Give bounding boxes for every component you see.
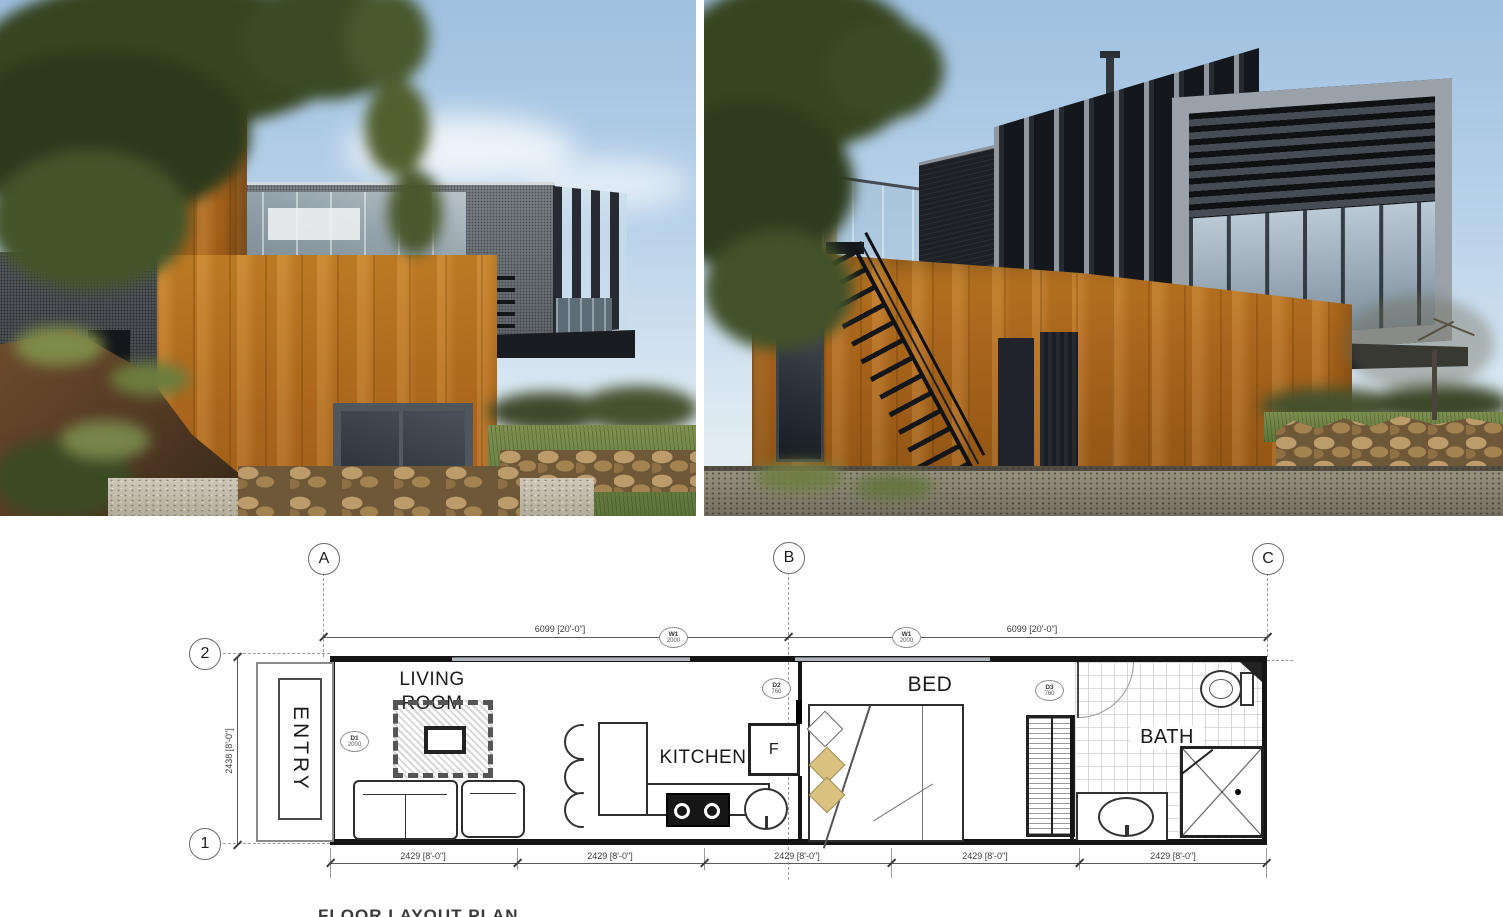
burner — [674, 803, 690, 819]
grid-bubble-c-label: C — [1262, 550, 1274, 568]
sink-faucet — [1125, 825, 1129, 835]
grid-bubble-c: C — [1252, 543, 1284, 575]
photo-left-exterior — [0, 0, 696, 516]
door-tag-d2: D2 760 — [762, 678, 791, 699]
kitchen-island-vertical — [598, 722, 648, 816]
grid-bubble-a: A — [308, 543, 340, 575]
grid-bubble-2: 2 — [189, 638, 221, 670]
faucet — [765, 816, 768, 828]
dim-extension — [1079, 848, 1080, 870]
dim-text-left: 2438 [8'-0"] — [224, 728, 234, 773]
fridge-label: F — [769, 741, 779, 759]
foliage-mass — [824, 20, 944, 120]
shower-drain — [1235, 789, 1241, 795]
entry-inner: ENTRY — [278, 678, 322, 820]
door-dark — [998, 338, 1034, 470]
grid-line-2 — [218, 653, 330, 654]
tuft — [60, 420, 150, 460]
grid-line-a — [323, 573, 324, 657]
bar-stool — [564, 724, 600, 760]
photo-right-exterior — [704, 0, 1503, 516]
dim-extension — [517, 848, 518, 870]
tuft — [854, 474, 934, 500]
door-tag-d1: D1 2000 — [340, 731, 369, 752]
burner — [704, 803, 720, 819]
coffee-table — [424, 726, 466, 754]
dim-line-bottom — [330, 863, 1267, 864]
sofa — [353, 780, 458, 840]
dim-text-top-right: 6099 [20'-0"] — [1007, 624, 1057, 634]
kitchen-label: KITCHEN — [655, 747, 751, 769]
plan-title: FLOOR LAYOUT PLAN — [318, 906, 519, 917]
bar-stool — [564, 792, 600, 828]
tuft — [14, 326, 104, 366]
bed-label: BED — [895, 673, 965, 697]
foliage-sprig — [345, 0, 429, 85]
grid-bubble-1: 1 — [189, 828, 221, 860]
grid-line-c — [1267, 573, 1268, 657]
foliage-mass — [0, 150, 190, 290]
armchair-seat-line — [470, 793, 516, 794]
foliage-sprig — [365, 80, 429, 175]
door-leaf-d2 — [796, 700, 802, 724]
roof-louvres — [1189, 96, 1435, 218]
wardrobe-divider — [1051, 718, 1053, 834]
grid-bubble-b-label: B — [784, 549, 795, 567]
foliage-sprig — [388, 170, 442, 255]
kitchen-sink — [744, 788, 788, 830]
armchair — [461, 780, 525, 838]
grid-line-c-stub — [1267, 660, 1293, 661]
screenshot-root: A B C 2 1 6099 [20'-0"] 6099 [20'-0"] W1… — [0, 0, 1503, 917]
vanity-sink — [1098, 797, 1154, 837]
duvet-corner-line — [873, 784, 933, 822]
dim-tick — [233, 840, 242, 849]
fridge: F — [748, 723, 800, 776]
grass-tufts — [744, 452, 1004, 516]
tuft — [110, 362, 190, 396]
dim-text-bottom-4: 2429 [8'-0"] — [962, 851, 1007, 861]
bar-stool — [564, 759, 600, 795]
door-tag-size: 2000 — [348, 742, 361, 748]
bare-tree-crown — [1344, 296, 1494, 392]
sofa-seat-split — [405, 794, 406, 838]
door-tag-size: 760 — [771, 689, 781, 695]
partition-wall-b-lower — [798, 776, 802, 839]
tree-canopy — [704, 0, 954, 380]
dim-text-bottom-2: 2429 [8'-0"] — [587, 851, 632, 861]
window-tag-w1-left: W1 2000 — [659, 627, 688, 648]
dim-text-bottom-5: 2429 [8'-0"] — [1150, 851, 1195, 861]
dim-line-left — [237, 657, 238, 845]
door-tag-d3: D3 760 — [1035, 680, 1064, 701]
shower-corner-cut — [1181, 749, 1214, 775]
dim-line-top — [323, 637, 1267, 638]
grid-bubble-a-label: A — [319, 550, 330, 568]
dim-text-top-left: 6099 [20'-0"] — [535, 624, 585, 634]
stone-wall-foreground — [238, 466, 520, 516]
toilet-tank — [1240, 672, 1254, 706]
grid-line-1 — [218, 843, 330, 844]
grid-bubble-1-label: 1 — [201, 835, 210, 853]
bed-bath-wall — [1070, 716, 1074, 839]
door-slatted — [1040, 332, 1078, 472]
duvet-fold-line — [922, 706, 923, 840]
tuft — [754, 462, 844, 492]
partition-wall-b-upper — [798, 662, 802, 700]
flue-cap — [1100, 51, 1120, 58]
door-tag-size: 760 — [1044, 691, 1054, 697]
dim-text-bottom-1: 2429 [8'-0"] — [400, 851, 445, 861]
window-w1-right — [795, 657, 990, 661]
cooktop — [666, 793, 730, 827]
grid-bubble-2-label: 2 — [201, 645, 210, 663]
toilet-bowl — [1200, 670, 1242, 708]
toilet-bowl-inner — [1209, 679, 1233, 699]
dim-text-bottom-3: 2429 [8'-0"] — [774, 851, 819, 861]
window-tag-size: 2000 — [900, 638, 913, 644]
tree-canopy — [0, 0, 460, 300]
window-w1-left — [452, 657, 690, 661]
wardrobe — [1026, 715, 1076, 837]
dim-extension — [704, 848, 705, 870]
grid-bubble-b: B — [773, 542, 805, 574]
window-tag-w1-right: W1 2000 — [892, 627, 921, 648]
entry-label: ENTRY — [288, 706, 312, 792]
shower — [1180, 746, 1264, 838]
bath-door-leaf — [1077, 662, 1079, 718]
bare-tree-trunk — [1432, 350, 1437, 420]
foliage-mass — [704, 230, 854, 350]
fin-end-glass — [556, 298, 612, 334]
window-tag-size: 2000 — [667, 638, 680, 644]
